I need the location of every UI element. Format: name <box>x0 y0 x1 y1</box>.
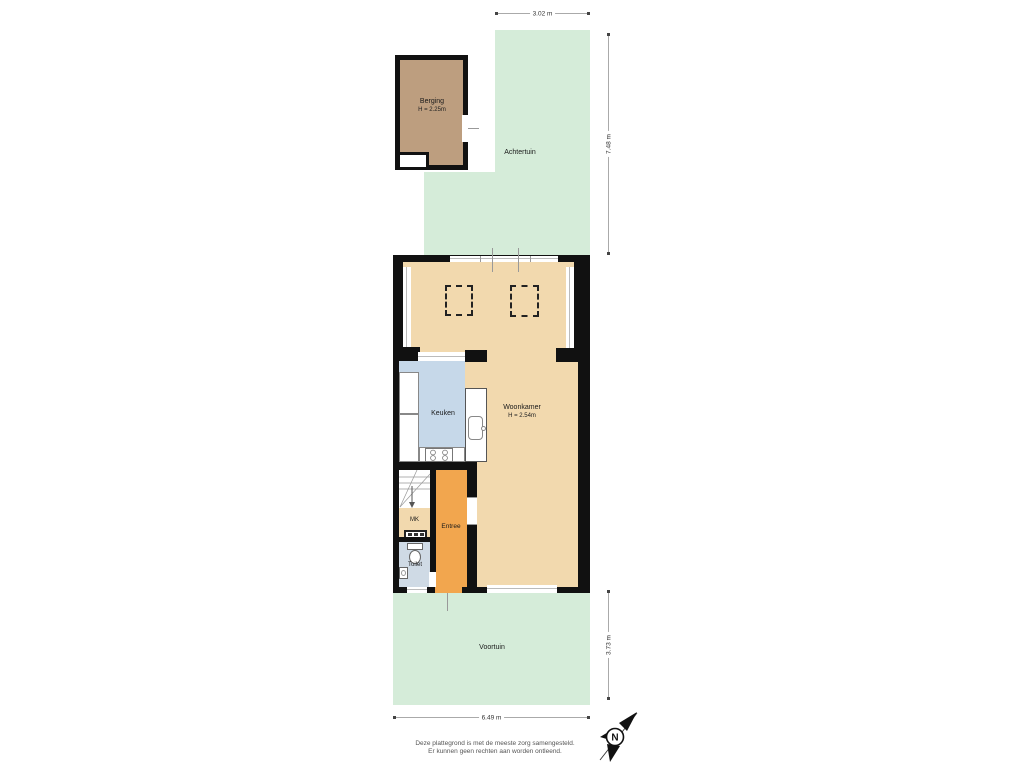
disclaimer: Deze plattegrond is met de meeste zorg s… <box>393 740 597 757</box>
right-side-window <box>566 267 574 348</box>
disclaimer-line-2: Er kunnen geen rechten aan worden ontlee… <box>393 748 597 756</box>
right-side-window-glassline <box>569 267 570 348</box>
roof-light-2 <box>510 285 539 317</box>
living-room-label: Woonkamer H = 2.54m <box>482 404 562 420</box>
wall-notch-left <box>393 347 420 362</box>
north-label: N <box>611 733 618 744</box>
rear-window-tick <box>480 256 481 262</box>
kitchen-pass-window-glassline <box>418 356 465 357</box>
front-window-glassline <box>487 588 557 589</box>
front-garden-label: Voortuin <box>452 644 532 653</box>
toilet-tank-icon <box>407 543 423 550</box>
kitchen-cabinet-lower <box>399 414 419 462</box>
dimension-top-value: 3.02 m <box>530 10 556 17</box>
wall-below-kitchen <box>393 462 468 470</box>
right-wall-upper <box>574 255 590 362</box>
left-side-window-glassline <box>406 267 407 347</box>
compass-rose-icon: N <box>594 710 642 764</box>
toilet-front-window-glassline <box>407 589 427 590</box>
back-garden-lower <box>424 172 590 255</box>
rear-window-tick <box>530 256 531 262</box>
faucet-icon <box>481 426 486 431</box>
kitchen-cabinet-upper <box>399 372 419 414</box>
dimension-right-lower: 3.73 m <box>604 590 613 700</box>
left-side-window <box>403 267 411 347</box>
rear-window <box>450 256 558 262</box>
wall-stub-middle <box>465 350 487 362</box>
wall-notch-right <box>556 348 590 362</box>
dimension-right-lower-value: 3.73 m <box>605 632 612 658</box>
front-door-opening <box>435 587 462 593</box>
stove-icon <box>425 448 453 462</box>
dimension-right-upper-value: 7.48 m <box>605 131 612 157</box>
front-door-swing-line <box>447 593 448 611</box>
roof-light-1 <box>445 285 473 316</box>
rear-door-panel-line <box>518 248 519 272</box>
rear-door-panel-line <box>492 248 493 272</box>
shed-door-swing-line <box>468 128 479 129</box>
hall-label: Entree <box>431 523 471 531</box>
floorplan-canvas: Berging H = 2.25m Achtertuin Keuken Woon… <box>0 0 1024 768</box>
disclaimer-line-1: Deze plattegrond is met de meeste zorg s… <box>393 740 597 748</box>
living-room-height: H = 2.54m <box>482 413 562 421</box>
living-room-name: Woonkamer <box>482 404 562 413</box>
staircase-icon <box>399 470 430 508</box>
toilet-label: Toilet <box>396 562 434 570</box>
dimension-top: 3.02 m <box>495 9 590 18</box>
shed-height: H = 2.25m <box>396 107 468 115</box>
back-garden-label: Achtertuin <box>480 149 560 158</box>
living-room-door-opening <box>467 497 477 525</box>
toilet-front-window <box>407 587 427 593</box>
shed-gate-opening <box>397 152 429 170</box>
shed-label: Berging H = 2.25m <box>396 98 468 114</box>
kitchen-label: Keuken <box>413 410 473 419</box>
shed-name: Berging <box>396 98 468 107</box>
meter-cupboard-label: MK <box>399 517 430 525</box>
front-window <box>487 585 557 593</box>
dimension-right-upper: 7.48 m <box>604 33 613 255</box>
rear-window-glassline <box>450 258 558 259</box>
dimension-bottom-value: 6.49 m <box>479 714 505 721</box>
dimension-bottom: 6.49 m <box>393 713 590 722</box>
